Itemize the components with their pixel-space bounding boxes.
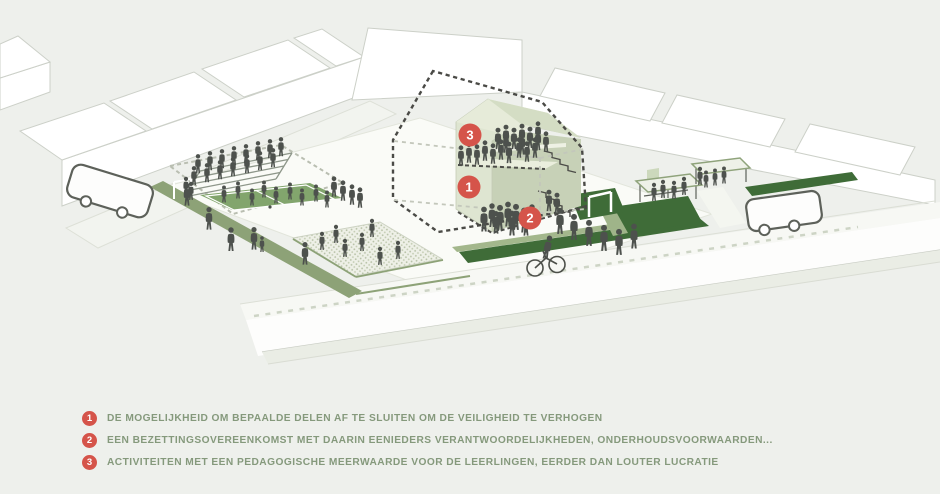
legend: 1 DE MOGELIJKHEID OM BEPAALDE DELEN AF T… xyxy=(82,411,773,470)
svg-text:2: 2 xyxy=(526,211,533,226)
legend-text-1: DE MOGELIJKHEID OM BEPAALDE DELEN AF TE … xyxy=(107,413,603,424)
marker-2: 2 xyxy=(519,207,542,230)
legend-item: 3 ACTIVITEITEN MET EEN PEDAGOGISCHE MEER… xyxy=(82,455,773,470)
legend-text-2: EEN BEZETTINGSOVEREENKOMST MET DAARIN EE… xyxy=(107,435,773,446)
site-diagram: 3 1 2 1 DE MOGELIJKHEID OM BEPAALDE DELE… xyxy=(0,0,940,494)
svg-text:3: 3 xyxy=(466,128,473,143)
marker-3: 3 xyxy=(459,124,482,147)
legend-marker-1: 1 xyxy=(82,411,97,426)
legend-item: 2 EEN BEZETTINGSOVEREENKOMST MET DAARIN … xyxy=(82,433,773,448)
legend-item: 1 DE MOGELIJKHEID OM BEPAALDE DELEN AF T… xyxy=(82,411,773,426)
legend-marker-2: 2 xyxy=(82,433,97,448)
svg-text:1: 1 xyxy=(465,180,472,195)
building-corner xyxy=(352,28,522,100)
marker-1: 1 xyxy=(458,176,481,199)
legend-text-3: ACTIVITEITEN MET EEN PEDAGOGISCHE MEERWA… xyxy=(107,457,719,468)
legend-marker-3: 3 xyxy=(82,455,97,470)
ball xyxy=(268,205,271,208)
